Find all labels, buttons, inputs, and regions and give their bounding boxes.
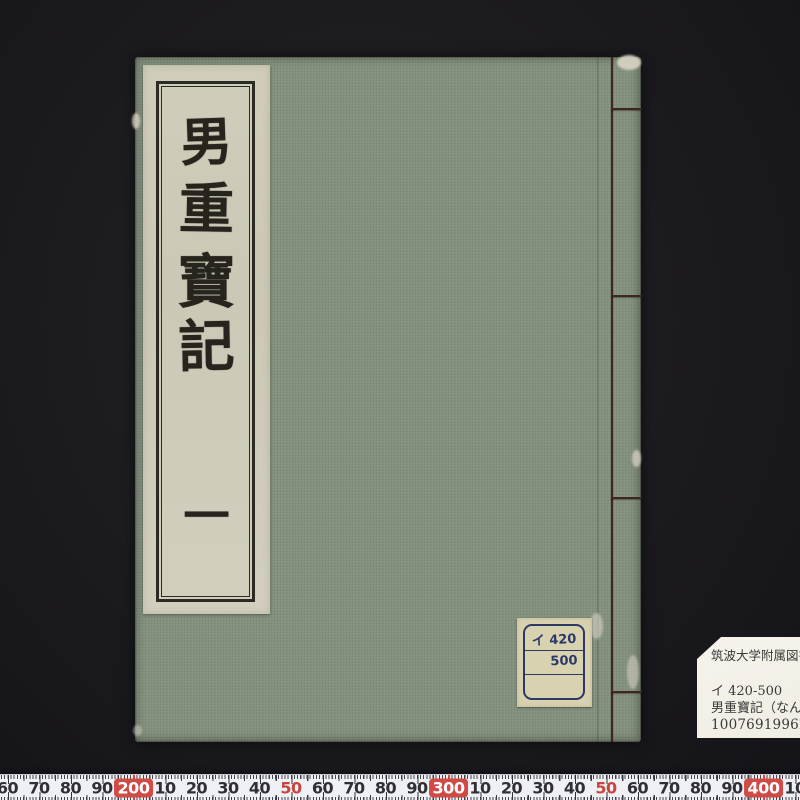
wear-spot (627, 655, 639, 689)
card-call-number: イ 420-500 (711, 684, 782, 699)
call-number-frame: イ 420 500 (523, 624, 585, 700)
ruler-number: 30 (532, 779, 553, 798)
call-number-row-1: イ 420 (525, 627, 584, 649)
binding-thread (611, 57, 613, 742)
ruler: 6070809020010203040506070809030010203040… (0, 774, 800, 800)
call-number-divider (525, 650, 583, 651)
ruler-number: 70 (343, 779, 364, 798)
wear-spot (617, 55, 641, 70)
ruler-number: 40 (564, 779, 585, 798)
ruler-number: 10 (469, 779, 490, 798)
ruler-number: 80 (60, 779, 81, 798)
photo-scene: 男 重 寶 記 一 イ 420 500 (0, 0, 800, 800)
title-label: 男 重 寶 記 一 (143, 65, 270, 614)
call-number-row-2: 500 (525, 653, 593, 670)
ruler-number: 90 (721, 779, 742, 798)
book-cover: 男 重 寶 記 一 イ 420 500 (135, 57, 641, 742)
card-title: 男重寶記（なんちょうほうき） (711, 701, 800, 716)
binding-stitch (611, 691, 642, 693)
ruler-number: 400 (744, 779, 784, 798)
binding-stitch (611, 295, 642, 297)
ruler-number: 20 (186, 779, 207, 798)
ruler-number: 60 (312, 779, 333, 798)
cover-hinge-crease (597, 57, 600, 742)
ruler-number: 90 (406, 779, 427, 798)
ruler-number: 80 (690, 779, 711, 798)
card-institution: 筑波大学附属図書館 (711, 648, 800, 663)
ruler-number: 80 (375, 779, 396, 798)
call-number-label: イ 420 500 (517, 618, 592, 707)
ruler-labels: 6070809020010203040506070809030010203040… (0, 775, 800, 800)
wear-spot (133, 725, 142, 736)
title-char-1: 男 (142, 115, 271, 171)
ruler-number: 40 (249, 779, 270, 798)
ruler-number: 60 (0, 779, 18, 798)
wear-spot (132, 113, 140, 129)
ruler-number: 10 (154, 779, 175, 798)
call-number-divider (525, 674, 583, 675)
ruler-number: 90 (91, 779, 112, 798)
ruler-number: 50 (595, 779, 616, 798)
title-char-2: 重 (143, 180, 271, 237)
ruler-number: 30 (217, 779, 238, 798)
title-char-3: 寶 (143, 253, 270, 311)
ruler-number: 200 (114, 779, 154, 798)
ruler-number: 70 (658, 779, 679, 798)
volume-char: 一 (143, 493, 270, 539)
ruler-number: 70 (28, 779, 49, 798)
ruler-number: 20 (501, 779, 522, 798)
binding-stitch (611, 108, 642, 110)
ruler-number: 300 (429, 779, 469, 798)
binding-stitch (611, 497, 642, 499)
ruler-number: 10 (784, 779, 800, 798)
wear-spot (632, 450, 641, 467)
card-barcode-number: 10076919962 (711, 718, 800, 733)
ruler-number: 50 (280, 779, 301, 798)
title-char-4: 記 (143, 318, 271, 376)
library-card: 筑波大学附属図書館 イ 420-500 男重寶記（なんちょうほうき） 10076… (697, 637, 800, 738)
ruler-number: 60 (627, 779, 648, 798)
